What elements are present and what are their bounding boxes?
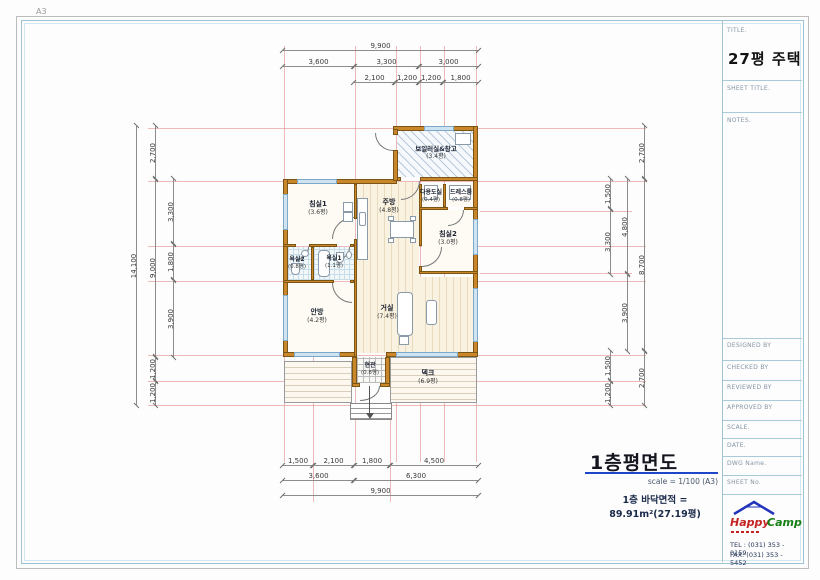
logo-word-camp: Camp	[767, 516, 802, 529]
logo-roof-icon	[732, 498, 788, 518]
wall-interior	[419, 207, 448, 210]
room-label-bathroom1: 욕실1(1.1평)	[325, 255, 343, 269]
logo-word-happy: Happy	[730, 516, 770, 529]
window	[396, 352, 458, 357]
wall-interior	[283, 280, 334, 283]
dim-bottom: 4,500	[390, 465, 478, 466]
sheet-no-label: SHEET No.	[727, 479, 761, 486]
plan-caption-scale: scale = 1/100 (A3)	[585, 477, 718, 486]
dim-top-overall: 9,900	[283, 50, 478, 51]
wall-interior	[283, 244, 296, 247]
title-block-line	[723, 400, 802, 401]
room-label-entrance: 현관(0.8평)	[361, 362, 379, 376]
sink	[346, 251, 352, 259]
title-block-line	[723, 494, 802, 495]
wall-interior	[350, 244, 354, 247]
dim-right: 2,700	[644, 351, 645, 405]
dim-top: 3,000	[419, 66, 478, 67]
scale-label: SCALE.	[727, 424, 750, 431]
wall	[385, 357, 390, 385]
wall	[352, 383, 360, 387]
chair	[388, 216, 394, 221]
caption-underline	[585, 472, 718, 474]
dim-left: 1,200	[155, 357, 156, 381]
title-label: TITLE.	[727, 27, 747, 34]
dim-left: 3,300	[173, 179, 174, 244]
window	[473, 219, 478, 255]
dim-right: 8,700	[644, 179, 645, 351]
coffee-table	[426, 300, 437, 325]
dim-top: 3,300	[354, 66, 419, 67]
chair	[410, 216, 416, 221]
room-label-living-room: 거실(7.4평)	[377, 304, 397, 320]
dim-bottom: 1,500	[283, 465, 313, 466]
dim-left-overall: 14,100	[136, 126, 137, 405]
title-block-line	[723, 420, 802, 421]
room-label-deck: 덱크(6.9평)	[418, 369, 438, 385]
deck-left-band	[284, 361, 352, 403]
dim-top: 3,600	[283, 66, 354, 67]
dim-top: 1,200	[419, 82, 443, 83]
wall-interior	[464, 207, 478, 210]
room-label-bathroom2: 욕실2(0.8평)	[288, 256, 306, 270]
drawing-sheet: A3 TITLE. 27평 주택 SHEET TITLE. NOTES. DES…	[0, 0, 820, 580]
sheet-title-label: SHEET TITLE.	[727, 85, 770, 92]
dim-top: 1,200	[395, 82, 419, 83]
approved-by-label: APPROVED BY	[727, 404, 772, 411]
happy-camp-logo: Happy Camp TEL : (031) 353 - 0159 FAX: (…	[730, 498, 794, 562]
dim-left: 2,700	[155, 126, 156, 179]
wall	[352, 357, 357, 385]
room-label-bedroom1: 침실1(3.6평)	[308, 200, 328, 216]
boiler-unit	[455, 133, 471, 145]
dining-table	[390, 221, 414, 238]
dim-right: 3,900	[627, 274, 628, 351]
plan-caption-area: 1층 바닥면적 = 89.91m²(27.19평)	[585, 492, 725, 520]
window	[297, 179, 337, 184]
title-block-line	[723, 360, 802, 361]
title-block-line	[723, 112, 802, 113]
wall-interior	[419, 271, 478, 274]
dim-top: 2,100	[354, 82, 395, 83]
wall	[393, 129, 398, 135]
wall-interior	[311, 247, 314, 280]
title-block-line	[723, 80, 802, 81]
room-label-dressroom: 드레스룸(0.8평)	[450, 189, 472, 203]
room-label-boiler-storage: 보일러실&창고(3.4평)	[415, 145, 457, 161]
title-block-line	[723, 338, 802, 339]
entry-direction-line	[369, 386, 370, 414]
title-block-line	[723, 380, 802, 381]
kitchen-counter	[357, 198, 368, 260]
logo-fax: FAX: (031) 353 - 5452	[730, 551, 794, 567]
wall	[420, 177, 478, 181]
paper-size-label: A3	[36, 7, 47, 16]
room-label-kitchen: 주방(4.8평)	[379, 198, 399, 214]
window	[283, 295, 288, 341]
dim-right: 1,200	[610, 381, 611, 405]
room-label-bedroom2: 침실2(3.0평)	[438, 230, 458, 246]
window	[283, 194, 288, 230]
designed-by-label: DESIGNED BY	[727, 342, 771, 349]
down-arrow-icon	[366, 413, 374, 419]
title-block-divider	[722, 21, 723, 562]
reviewed-by-label: REVIEWED BY	[727, 384, 772, 391]
dim-bottom-overall: 9,900	[283, 495, 478, 496]
title-block-line	[723, 438, 802, 439]
chair	[410, 238, 416, 243]
window	[473, 288, 478, 342]
room-label-utility: 다용도실(0.4평)	[420, 189, 442, 203]
checked-by-label: CHECKED BY	[727, 364, 768, 371]
window	[424, 126, 454, 131]
title-block-line	[723, 475, 802, 476]
dim-right: 1,500	[610, 179, 611, 209]
chair	[388, 238, 394, 243]
dim-left: 1,200	[155, 381, 156, 405]
dwg-name-label: DWG Name.	[727, 460, 766, 467]
dim-bottom: 3,600	[283, 480, 354, 481]
dim-bottom: 2,100	[313, 465, 354, 466]
notes-label: NOTES.	[727, 117, 751, 124]
kimchi-refrigerator	[343, 212, 353, 222]
dim-right: 2,700	[644, 126, 645, 179]
wall	[380, 383, 390, 387]
dim-left: 3,900	[173, 280, 174, 357]
dim-bottom: 6,300	[354, 480, 478, 481]
dim-right: 1,500	[610, 351, 611, 381]
wall-interior	[443, 184, 446, 207]
kitchen-sink	[359, 212, 366, 226]
logo-dashes	[731, 531, 761, 533]
project-title: 27평 주택	[728, 48, 802, 69]
dim-right: 4,800	[627, 179, 628, 274]
plan-caption-title: 1층평면도	[590, 448, 678, 475]
room-label-master-bedroom: 안방(4.2평)	[307, 308, 327, 324]
dim-left: 1,800	[173, 244, 174, 280]
title-block-line	[723, 456, 802, 457]
dim-bottom: 1,800	[354, 465, 390, 466]
refrigerator	[343, 202, 353, 212]
grid-line-horizontal	[148, 405, 646, 406]
dim-top: 1,800	[443, 82, 478, 83]
date-label: DATE.	[727, 442, 746, 449]
side-table	[399, 336, 409, 345]
window	[294, 352, 340, 357]
sofa	[397, 292, 413, 336]
dim-right: 3,300	[610, 209, 611, 274]
dim-left: 9,000	[155, 179, 156, 357]
